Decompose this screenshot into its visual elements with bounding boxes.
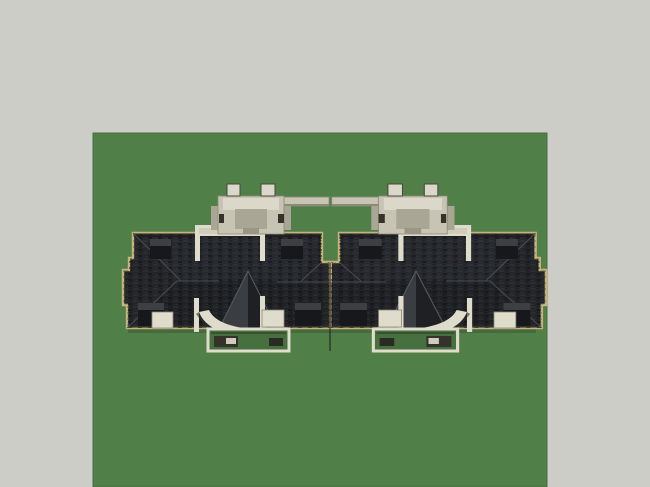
chimney-cap (496, 239, 518, 246)
chimney-cap (150, 239, 171, 246)
chimney-upper-right (496, 239, 518, 259)
building-ground-shadow (128, 329, 536, 333)
deck-wall-left (195, 235, 200, 261)
penthouse-landing (243, 228, 259, 234)
roof-cap-block-right (261, 184, 275, 196)
chimney-lower-left (340, 303, 367, 326)
bay-right (262, 310, 284, 327)
chimney-upper-left (150, 239, 171, 259)
bay-right (494, 312, 516, 328)
penthouse-roof-panel (223, 198, 279, 210)
roof-cap-block-left (227, 184, 240, 196)
penthouse-landing (405, 228, 422, 234)
chimney-lower-right (295, 303, 321, 326)
penthouse-stairwell (396, 209, 429, 229)
penthouse-roof-panel (384, 198, 442, 210)
chimney-cap (359, 239, 382, 246)
penthouse-window-left (379, 214, 385, 223)
penthouse-window-right (441, 214, 446, 223)
penthouse-window-left (219, 214, 224, 223)
deck-wall-right (466, 235, 471, 261)
chimney-cap (295, 303, 321, 310)
bay-left (379, 310, 402, 327)
penthouse-stairwell (235, 209, 267, 229)
patio-planter (380, 338, 395, 346)
chimney-cap (503, 303, 530, 310)
deck-wall-right (260, 235, 265, 261)
chimney-cap (138, 303, 164, 310)
patio-inner-shadow (376, 332, 454, 334)
chimney-upper-left (359, 239, 382, 259)
roof-cap-block-right (424, 184, 438, 196)
ground-patio[interactable] (208, 329, 289, 351)
patio-step (226, 338, 236, 344)
chimney-cap (340, 303, 367, 310)
model-viewport (0, 0, 650, 487)
ground-patio[interactable] (373, 329, 457, 351)
patio-inner-shadow (211, 332, 286, 334)
penthouse-window-right (278, 214, 284, 223)
patio-step (428, 338, 438, 344)
render-canvas (0, 0, 650, 487)
chimney-cap (281, 239, 303, 246)
bay-left (152, 312, 173, 328)
patio-planter (269, 338, 283, 346)
roof-cap-block-left (388, 184, 403, 196)
chimney-upper-right (281, 239, 303, 259)
deck-wall-left (398, 235, 403, 261)
